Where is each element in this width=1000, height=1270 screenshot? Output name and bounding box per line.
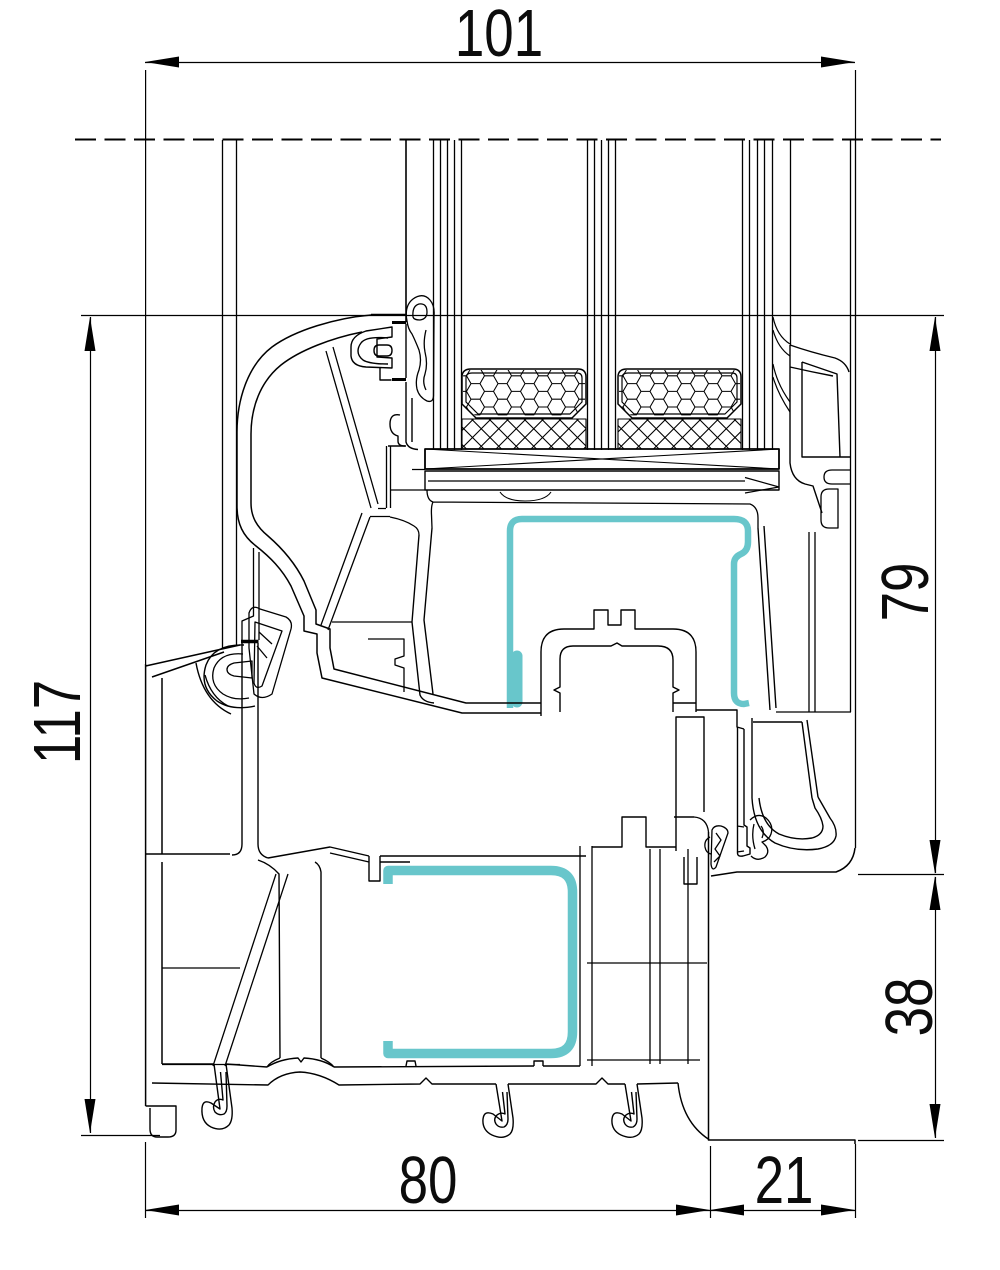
svg-text:117: 117 bbox=[19, 680, 94, 764]
svg-text:21: 21 bbox=[755, 1142, 814, 1217]
svg-text:80: 80 bbox=[399, 1142, 458, 1217]
svg-text:79: 79 bbox=[867, 563, 942, 622]
svg-text:38: 38 bbox=[871, 978, 946, 1037]
svg-text:101: 101 bbox=[455, 0, 543, 70]
